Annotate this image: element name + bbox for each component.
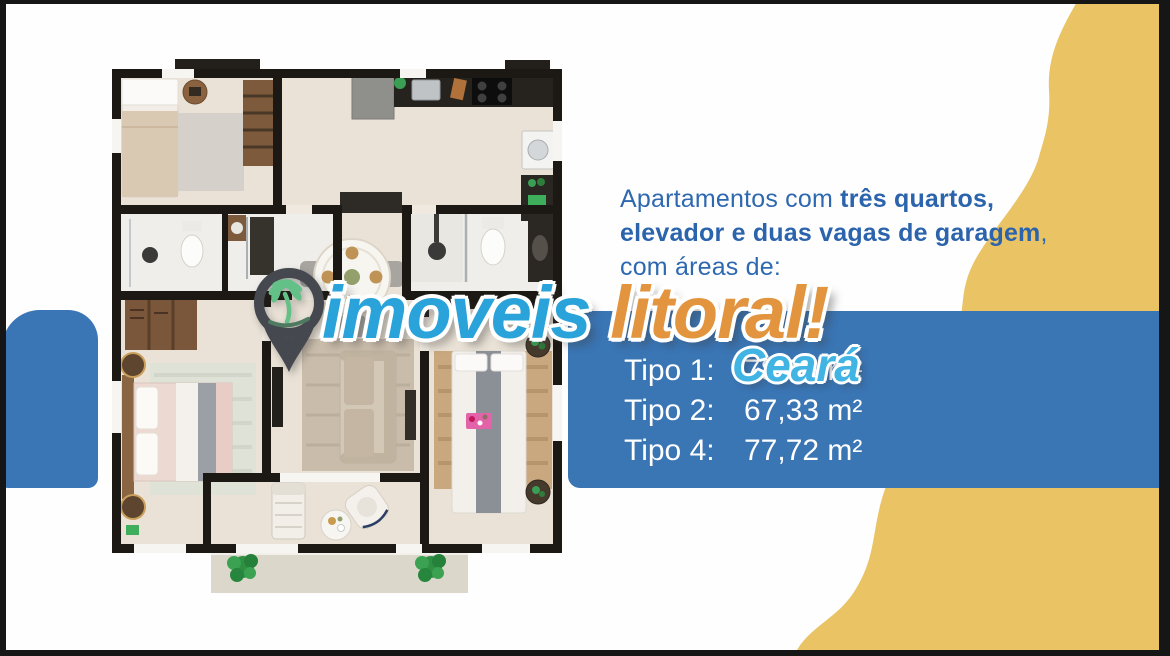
- hall-bench: [340, 192, 402, 213]
- left-accent-shape: [2, 310, 98, 488]
- type-area: 78,85 m²: [744, 351, 862, 391]
- floor-plan-image: [100, 55, 580, 600]
- sink-icon: [412, 80, 440, 100]
- shower-head-icon: [142, 247, 158, 263]
- bedroom1-side-stool: [183, 80, 207, 104]
- types-panel: Tipo 1: 78,85 m² Tipo 2: 67,33 m² Tipo 4…: [568, 311, 1170, 488]
- breakfast-tray-icon: [466, 413, 492, 429]
- master-headboard: [122, 375, 134, 499]
- intro-line1-bold: três quartos,: [840, 185, 994, 213]
- sofa: [340, 351, 396, 463]
- intro-text: Apartamentos com três quartos, elevador …: [620, 182, 1120, 284]
- balcony-chaise: [272, 483, 305, 539]
- bedroom1-shelf: [243, 80, 273, 166]
- sideboard: [405, 390, 416, 440]
- bedroom1-rug: [176, 113, 244, 191]
- intro-line-2: elevador e duas vagas de garagem,: [620, 216, 1120, 250]
- bedroom1-bed: [122, 79, 178, 197]
- basin-icon: [532, 235, 548, 261]
- type-row: Tipo 2: 67,33 m²: [624, 391, 862, 431]
- bedroom3-bed: [452, 351, 526, 513]
- type-label: Tipo 4:: [624, 431, 744, 471]
- type-label: Tipo 2:: [624, 391, 744, 431]
- type-area: 77,72 m²: [744, 431, 862, 471]
- stove-icon: [472, 78, 512, 105]
- type-area: 67,33 m²: [744, 391, 862, 431]
- balcony-plant-left: [227, 554, 258, 582]
- toilet-icon: [481, 229, 505, 265]
- intro-line3-text: com áreas de:: [620, 253, 781, 281]
- tv-panel: [272, 367, 283, 427]
- plant-icon: [394, 77, 406, 89]
- intro-line2-regular: ,: [1041, 219, 1048, 247]
- intro-line2-bold: elevador e duas vagas de garagem: [620, 219, 1041, 247]
- intro-line-1: Apartamentos com três quartos,: [620, 182, 1120, 216]
- shower-head-icon: [428, 242, 446, 260]
- balcony-plant-right: [415, 554, 446, 582]
- type-row: Tipo 1: 78,85 m²: [624, 351, 862, 391]
- toilet-icon: [181, 235, 203, 267]
- master-bed: [134, 383, 232, 481]
- balcony-table: [321, 510, 351, 540]
- type-label: Tipo 1:: [624, 351, 744, 391]
- master-wardrobe: [125, 300, 197, 350]
- type-row: Tipo 4: 77,72 m²: [624, 431, 862, 471]
- apartment-types-list: Tipo 1: 78,85 m² Tipo 2: 67,33 m² Tipo 4…: [624, 351, 862, 471]
- intro-line1-regular: Apartamentos com: [620, 185, 840, 213]
- intro-line-3: com áreas de:: [620, 250, 1120, 284]
- flyer-canvas: Apartamentos com três quartos, elevador …: [0, 0, 1170, 656]
